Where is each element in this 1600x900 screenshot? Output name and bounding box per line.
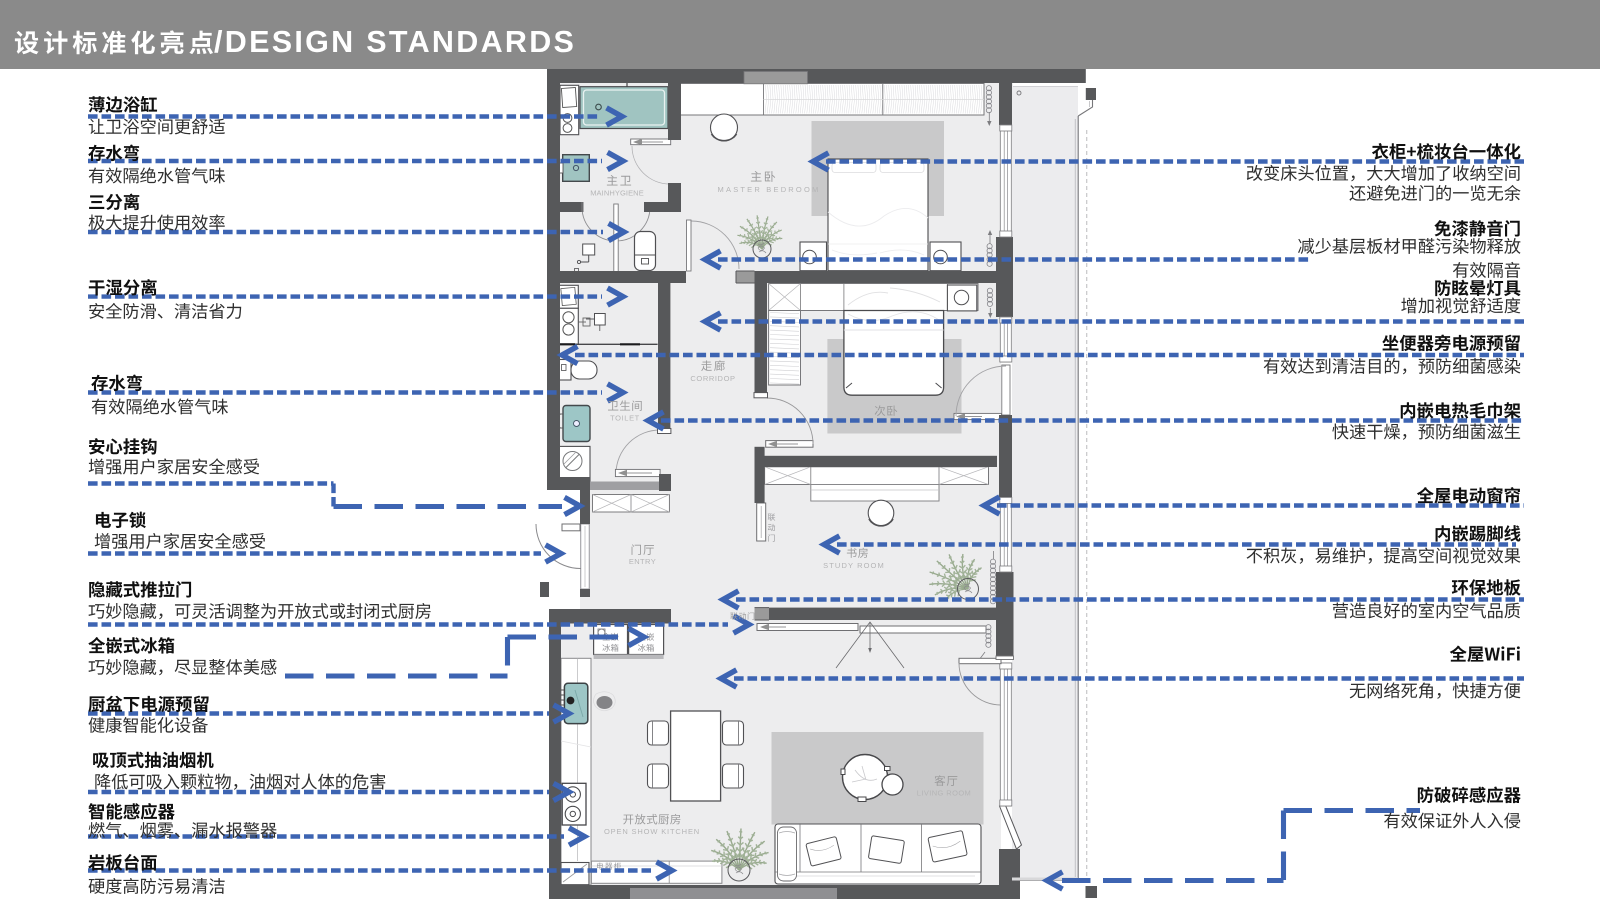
svg-text:TOILET: TOILET (610, 414, 640, 423)
svg-text:OPEN SHOW KITCHEN: OPEN SHOW KITCHEN (604, 827, 700, 836)
svg-text:/DESIGN STANDARDS: /DESIGN STANDARDS (214, 25, 576, 59)
svg-text:LIVING ROOM: LIVING ROOM (917, 789, 971, 798)
svg-text:CORRIDOP: CORRIDOP (690, 374, 735, 383)
svg-text:MASTER BEDROOM: MASTER BEDROOM (718, 185, 821, 194)
svg-text:ENTRY: ENTRY (629, 557, 656, 566)
svg-text:STUDY ROOM: STUDY ROOM (823, 561, 885, 570)
svg-text:MAINHYGIENE: MAINHYGIENE (590, 189, 644, 198)
